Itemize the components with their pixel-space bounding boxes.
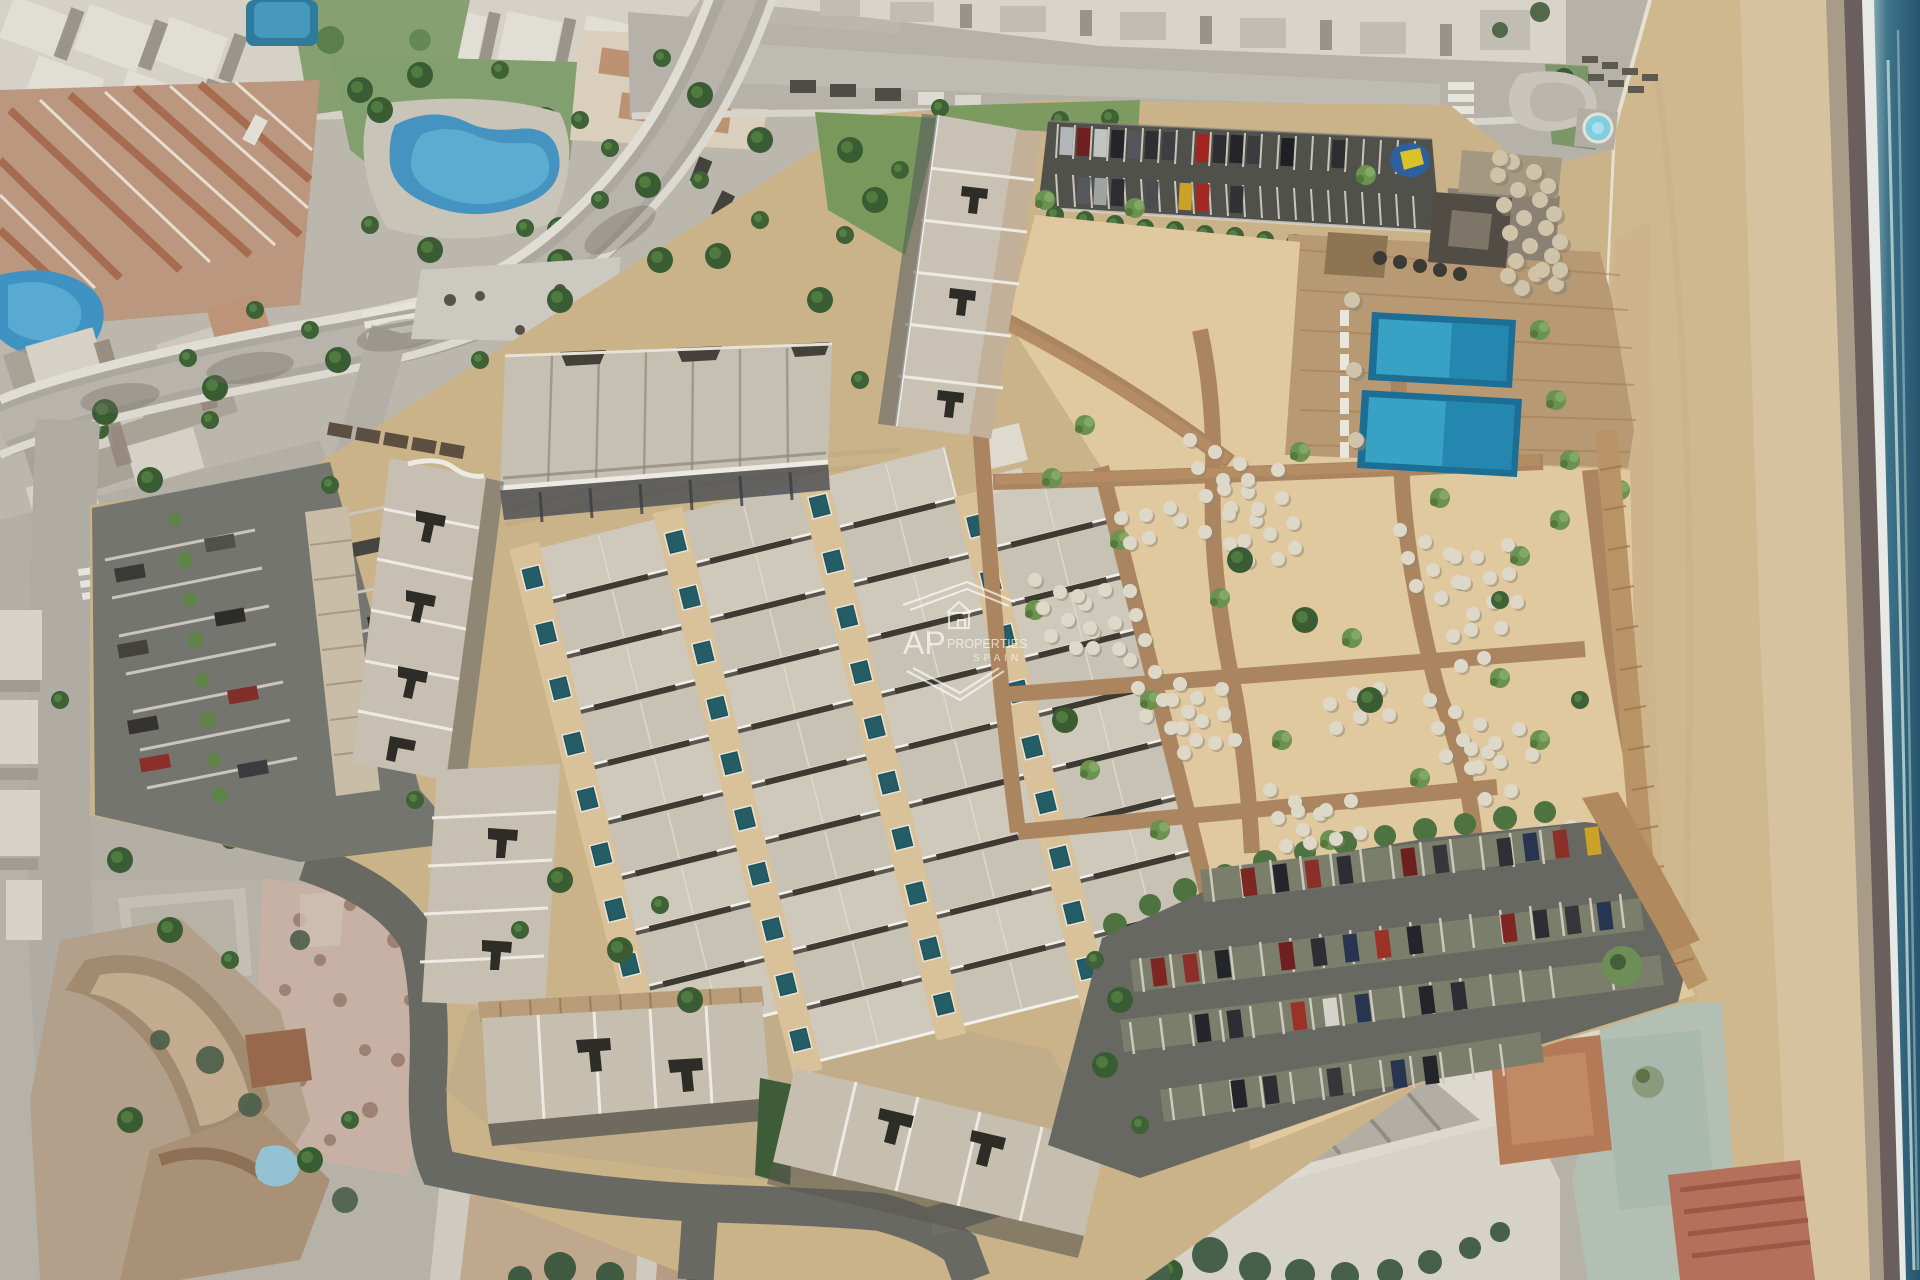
svg-text:AP: AP: [903, 625, 946, 661]
svg-text:SPAIN: SPAIN: [973, 653, 1022, 664]
svg-text:PROPERTIES: PROPERTIES: [947, 637, 1027, 651]
